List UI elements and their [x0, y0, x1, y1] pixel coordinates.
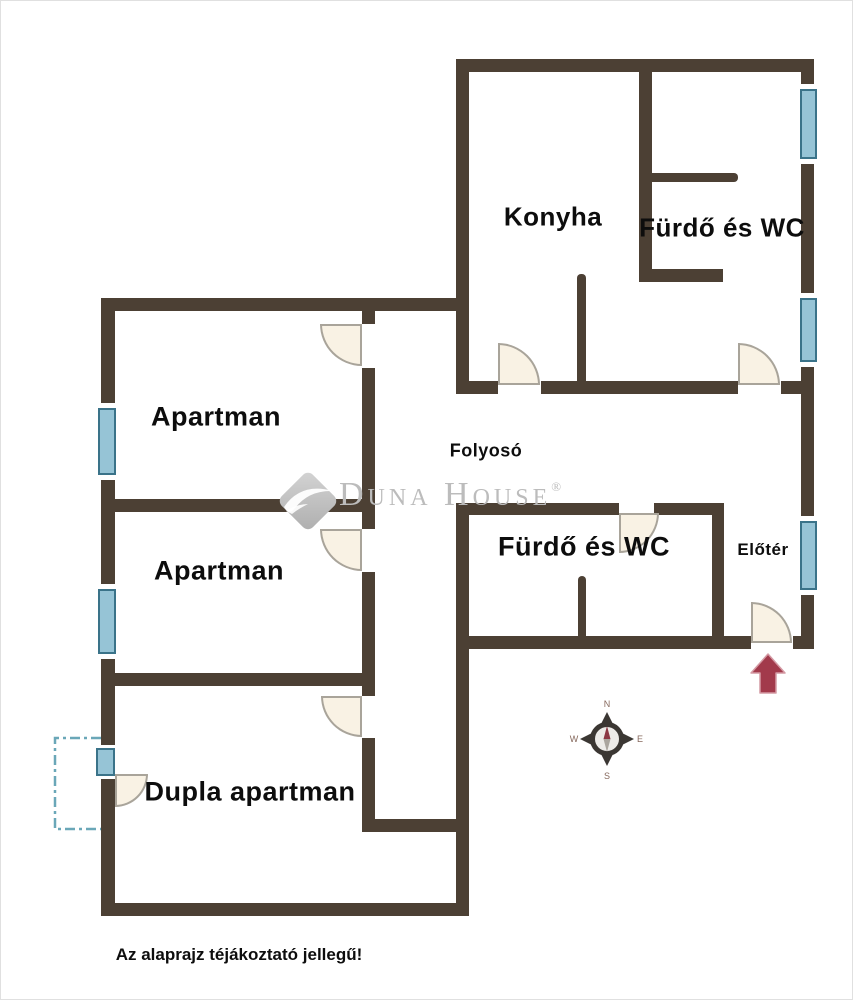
brand-name: Duna House — [339, 476, 551, 513]
wall-central-upper — [456, 59, 469, 394]
compass-label-s: S — [604, 771, 610, 781]
window-pane — [800, 89, 817, 159]
wall-leftsection-top — [101, 298, 456, 311]
wall-apartman-divider-2 — [101, 673, 375, 686]
balcony-dashed-line — [55, 738, 101, 829]
window-eloter-right — [800, 516, 817, 595]
compass-label-w: W — [570, 734, 579, 744]
door-dupla-corridor-arc — [321, 696, 362, 737]
door-furdo-top-arc — [738, 343, 780, 385]
wall-eloter-bottom-1 — [456, 636, 751, 649]
dunahouse-logo-text: Duna House® — [339, 478, 561, 512]
window-pane — [98, 589, 116, 654]
balcony-outline — [49, 731, 105, 835]
door-apartman1-arc — [320, 324, 362, 366]
wall-furdo-top-foot — [639, 269, 723, 282]
window-pane — [98, 408, 116, 475]
entrance-arrow — [749, 651, 789, 696]
wall-topsection-bottom-3 — [781, 381, 814, 394]
room-label-apartman-2: Apartman — [154, 556, 284, 587]
wall-topsection-bottom-2 — [541, 381, 738, 394]
wall-corridor-seg-1 — [362, 311, 375, 324]
wall-konyha-stub — [577, 274, 586, 394]
window-apartman2-left — [98, 584, 116, 659]
door-dupla-balcony-arc — [115, 774, 148, 807]
room-label-eloter: Előtér — [737, 540, 788, 560]
disclaimer-text: Az alaprajz téjákoztató jellegű! — [116, 945, 363, 965]
window-kitchen-right-upper — [800, 84, 817, 164]
window-pane — [800, 521, 817, 590]
room-label-apartman-1: Apartman — [151, 402, 281, 433]
wall-central-lower — [456, 503, 469, 916]
window-pane — [800, 298, 817, 362]
wall-furdo2-right — [712, 503, 724, 649]
door-entrance-arc — [751, 602, 792, 643]
entrance-arrow-shape — [751, 654, 785, 693]
logo-diamond — [277, 470, 339, 532]
dunahouse-logo-icon — [271, 462, 345, 540]
compass-label-e: E — [637, 734, 643, 744]
room-label-furdo-wc-bottom: Fürdő és WC — [498, 532, 670, 563]
compass-rose: N W E S — [569, 693, 645, 781]
floorplan-canvas: Konyha Fürdő és WC Apartman Apartman Fol… — [0, 0, 853, 1000]
wall-topsection-bottom-1 — [456, 381, 498, 394]
compass-label-n: N — [604, 699, 611, 709]
room-label-konyha: Konyha — [504, 202, 602, 233]
registered-mark: ® — [551, 479, 561, 494]
window-kitchen-right-lower — [800, 293, 817, 367]
wall-corridor-seg-3 — [362, 572, 375, 696]
wall-top-outer — [456, 59, 814, 72]
window-apartman1-left — [98, 403, 116, 480]
wall-bottom-outer — [101, 903, 469, 916]
door-konyha-arc — [498, 343, 540, 385]
wall-eloter-bottom-2 — [793, 636, 814, 649]
wall-corridor-bottom — [362, 819, 469, 832]
wall-furdo2-stub — [578, 576, 586, 642]
room-label-dupla-apartman: Dupla apartman — [144, 777, 355, 808]
wall-furdo-top-partition-stub — [646, 173, 738, 182]
room-label-furdo-wc-top: Fürdő és WC — [639, 213, 805, 244]
room-label-folyoso: Folyosó — [450, 441, 523, 462]
wall-konyha-furdo-divider — [639, 59, 652, 282]
wall-corridor-seg-4 — [362, 738, 375, 826]
